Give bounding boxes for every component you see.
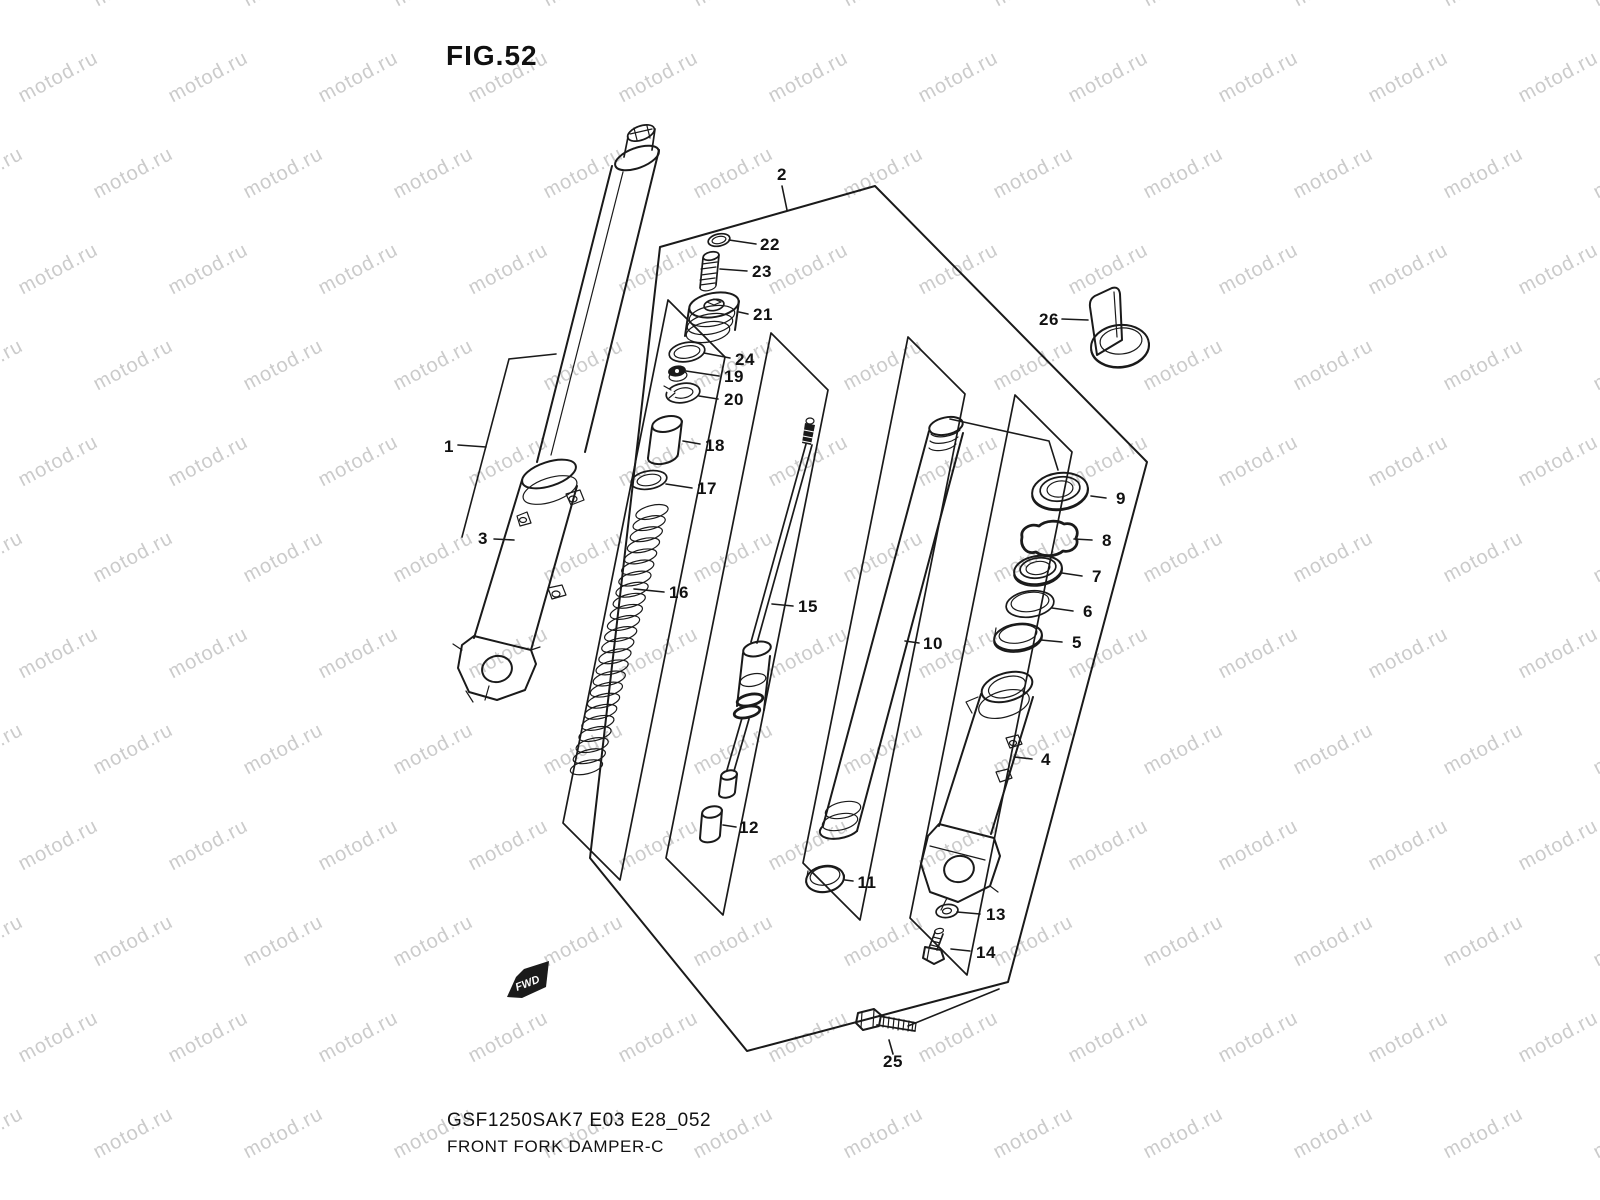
leader-13 xyxy=(957,912,980,914)
leader-17 xyxy=(666,484,692,488)
part-17-seat-ring xyxy=(630,468,669,492)
leader-16 xyxy=(634,589,664,592)
leader-9 xyxy=(1091,496,1106,498)
part-7-oil-seal xyxy=(1012,553,1063,587)
part-4-fork-leg-right xyxy=(921,666,1036,910)
part-6-retainer-ring xyxy=(1004,588,1055,620)
callout-26: 26 xyxy=(1039,310,1059,330)
callout-14: 14 xyxy=(976,943,996,963)
callout-17: 17 xyxy=(697,479,717,499)
part-5-slide-bushing xyxy=(992,621,1043,653)
fwd-arrow: FWD xyxy=(507,961,549,998)
part-24-o-ring xyxy=(668,340,707,365)
callout-10: 10 xyxy=(923,634,943,654)
part-12-bushing xyxy=(700,805,723,843)
part-21-fork-cap-bolt xyxy=(685,289,741,346)
part-19-lock-nut xyxy=(667,364,688,382)
part-8-stopper-ring xyxy=(1022,521,1078,555)
part-11-guide-bushing xyxy=(804,863,846,895)
callout-11: 11 xyxy=(858,873,877,893)
callout-3: 3 xyxy=(478,529,488,549)
callout-22: 22 xyxy=(760,235,780,255)
part-23-threaded-plug xyxy=(700,250,720,290)
frame-cylinder-group xyxy=(803,337,965,920)
leader-15 xyxy=(772,604,793,606)
callout-24: 24 xyxy=(735,350,755,370)
callout-21: 21 xyxy=(753,305,773,325)
leader-23 xyxy=(720,269,747,271)
leader-20 xyxy=(699,396,718,399)
fork-top-cap xyxy=(624,122,657,157)
leader-8 xyxy=(1074,539,1092,540)
leader-4 xyxy=(1014,757,1032,759)
callout-19: 19 xyxy=(724,367,744,387)
callout-6: 6 xyxy=(1083,602,1093,622)
leader-12 xyxy=(723,825,736,827)
boundary-outline xyxy=(590,186,1147,1051)
footer-caption: FRONT FORK DAMPER-C xyxy=(447,1137,664,1157)
group-frames xyxy=(563,300,1072,975)
callout-18: 18 xyxy=(705,436,725,456)
footer-code: GSF1250SAK7 E03 E28_052 xyxy=(447,1110,711,1132)
leader-18 xyxy=(683,441,700,444)
callout-16: 16 xyxy=(669,583,689,603)
leader-2 xyxy=(782,186,787,210)
part-10-damper-cylinder xyxy=(820,414,965,839)
part-26-reflector xyxy=(1089,288,1151,370)
callout-5: 5 xyxy=(1072,633,1082,653)
callout-7: 7 xyxy=(1092,567,1102,587)
callout-25: 25 xyxy=(883,1052,903,1072)
part-22-o-ring xyxy=(707,232,731,248)
leader-7 xyxy=(1062,573,1082,576)
part-13-washer xyxy=(935,903,959,919)
callout-13: 13 xyxy=(986,905,1006,925)
part-20-spring-washer xyxy=(664,381,701,406)
callout-15: 15 xyxy=(798,597,818,617)
part-18-spacer xyxy=(648,414,683,465)
leader-19 xyxy=(686,371,719,376)
leader-22 xyxy=(729,240,756,244)
leader-24 xyxy=(704,353,730,358)
leader-21 xyxy=(739,312,748,314)
part-25-clamp-bolt xyxy=(856,989,999,1031)
callout-2: 2 xyxy=(777,165,787,185)
callout-8: 8 xyxy=(1102,531,1112,551)
leader-lines xyxy=(634,186,1106,1054)
callout-9: 9 xyxy=(1116,489,1126,509)
parts-diagram-page: motod.rumotod.rumotod.rumotod.rumotod.ru… xyxy=(0,0,1600,1200)
callout-12: 12 xyxy=(739,818,759,838)
leader-14 xyxy=(951,949,970,951)
callout-1: 1 xyxy=(444,437,454,457)
callout-20: 20 xyxy=(724,390,744,410)
leader-6 xyxy=(1052,608,1073,611)
callout-23: 23 xyxy=(752,262,772,282)
leader-26 xyxy=(1062,319,1088,320)
leader-5 xyxy=(1041,640,1062,642)
leader-11 xyxy=(845,880,853,881)
callout-4: 4 xyxy=(1041,750,1051,770)
